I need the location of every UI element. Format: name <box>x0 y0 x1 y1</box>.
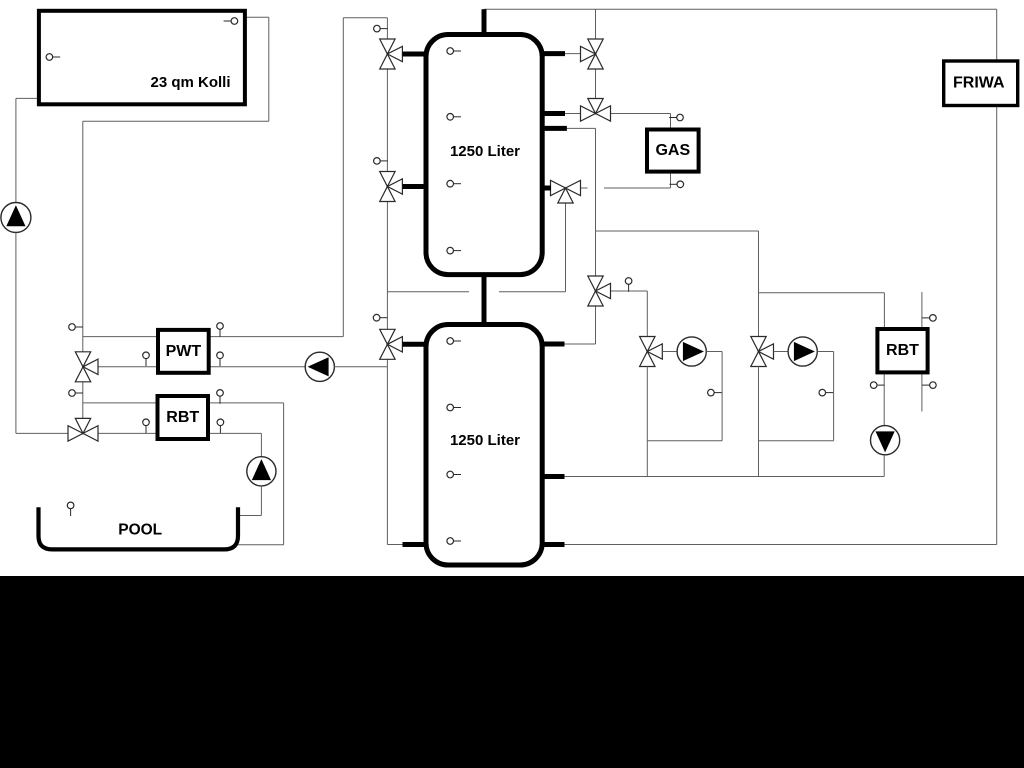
svg-text:FRIWA: FRIWA <box>953 75 1005 92</box>
svg-text:PWT: PWT <box>166 343 202 360</box>
svg-text:1250 Liter: 1250 Liter <box>450 432 520 449</box>
svg-text:RBT: RBT <box>166 409 199 426</box>
svg-text:GAS: GAS <box>655 142 690 159</box>
svg-text:23 qm Kolli: 23 qm Kolli <box>150 74 230 91</box>
svg-text:RBT: RBT <box>886 342 919 359</box>
svg-text:1250 Liter: 1250 Liter <box>450 143 520 160</box>
svg-text:POOL: POOL <box>118 521 162 538</box>
